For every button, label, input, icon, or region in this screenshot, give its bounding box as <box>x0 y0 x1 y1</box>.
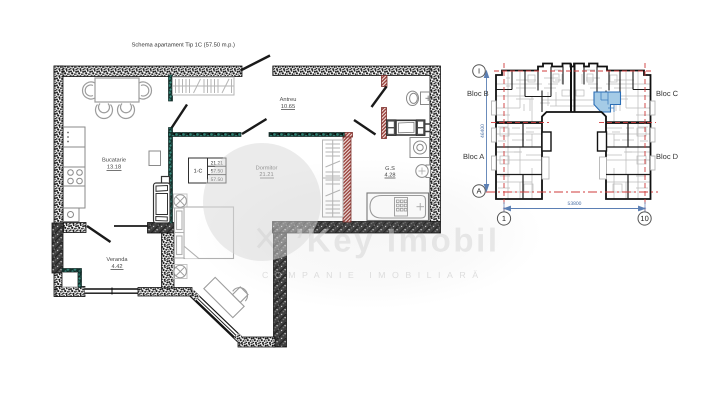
svg-text:1: 1 <box>502 214 506 223</box>
svg-text:Bucatarie: Bucatarie <box>102 157 126 164</box>
svg-text:COMPANIE IMOBILIARĂ: COMPANIE IMOBILIARĂ <box>262 270 485 280</box>
svg-text:1-C: 1-C <box>194 169 203 175</box>
svg-text:Veranda: Veranda <box>106 256 128 263</box>
svg-text:4.42: 4.42 <box>111 264 122 270</box>
svg-text:Bloc A: Bloc A <box>463 152 484 161</box>
svg-text:53800: 53800 <box>568 201 582 207</box>
svg-text:10: 10 <box>640 214 648 223</box>
svg-text:13.18: 13.18 <box>107 165 121 171</box>
svg-text:Schema apartament Tip 1C (57.5: Schema apartament Tip 1C (57.50 m.p.) <box>132 42 235 49</box>
svg-text:Bloc C: Bloc C <box>656 89 679 98</box>
svg-text:’Key Imobil: ’Key Imobil <box>295 222 500 259</box>
svg-text:Antreu: Antreu <box>280 97 297 103</box>
svg-text:Bloc B: Bloc B <box>467 89 489 98</box>
svg-text:Bloc D: Bloc D <box>656 152 679 161</box>
svg-text:10.65: 10.65 <box>281 104 295 110</box>
svg-text:A: A <box>476 187 481 196</box>
svg-text:46400: 46400 <box>480 124 486 138</box>
svg-text:I: I <box>478 67 480 76</box>
